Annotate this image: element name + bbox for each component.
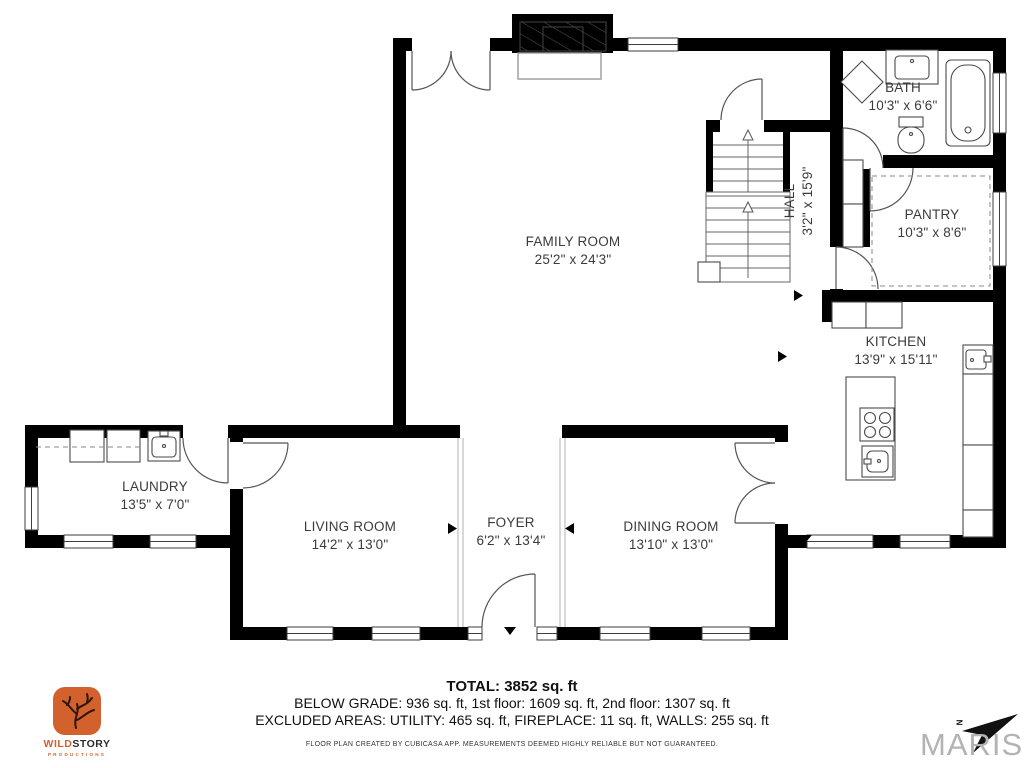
- door-stairs: [721, 79, 762, 120]
- kitchen-counter: [963, 374, 993, 445]
- room-dims: 6'2" x 13'4": [477, 532, 546, 550]
- door-living-room: [243, 443, 288, 488]
- door-closet: [870, 168, 913, 211]
- kitchen-counter: [963, 510, 993, 537]
- washer: [70, 430, 104, 462]
- room-name: PANTRY: [898, 206, 967, 224]
- kitchen-cabinet: [866, 302, 902, 328]
- stove: [860, 408, 894, 441]
- room-dims: 13'10" x 13'0": [623, 536, 718, 554]
- disclaimer: FLOOR PLAN CREATED BY CUBICASA APP. MEAS…: [0, 741, 1024, 748]
- floor-plan-page: FAMILY ROOM 25'2" x 24'3" BATH 10'3" x 6…: [0, 0, 1024, 768]
- laundry-sink: [148, 431, 180, 461]
- room-label-kitchen: KITCHEN 13'9" x 15'11": [854, 333, 937, 369]
- floor-plan-drawing: [0, 0, 1024, 768]
- wall-bath-left: [830, 38, 843, 168]
- wildstory-logo: WILDSTORY PRODUCTIONS: [27, 687, 127, 757]
- dryer: [107, 430, 140, 462]
- window: [628, 38, 678, 51]
- room-label-bath: BATH 10'3" x 6'6": [869, 79, 938, 115]
- room-name: LIVING ROOM: [304, 518, 396, 536]
- fireplace-hearth: [518, 53, 601, 79]
- window: [150, 535, 196, 548]
- window: [600, 627, 650, 640]
- room-label-hall: HALL 3'2" x 15'9": [781, 167, 817, 236]
- window: [702, 627, 750, 640]
- wildstory-name: WILDSTORY: [27, 738, 127, 750]
- wildstory-icon: [53, 687, 101, 735]
- wall-kitchen-top: [830, 290, 1006, 302]
- summary-block: TOTAL: 3852 sq. ft BELOW GRADE: 936 sq. …: [0, 678, 1024, 748]
- room-dims: 3'2" x 15'9": [799, 167, 817, 236]
- front-door: [482, 574, 535, 627]
- window: [25, 487, 38, 530]
- room-label-foyer: FOYER 6'2" x 13'4": [477, 514, 546, 550]
- room-dims: 13'5" x 7'0": [121, 496, 190, 514]
- room-name: FOYER: [477, 514, 546, 532]
- window: [993, 73, 1006, 133]
- total-area: TOTAL: 3852 sq. ft: [0, 678, 1024, 695]
- wildstory-subtitle: PRODUCTIONS: [27, 752, 127, 757]
- door-laundry: [183, 438, 228, 483]
- room-dims: 14'2" x 13'0": [304, 536, 396, 554]
- window: [993, 192, 1006, 266]
- room-dims: 10'3" x 6'6": [869, 97, 938, 115]
- room-name: LAUNDRY: [121, 478, 190, 496]
- toilet: [898, 117, 924, 153]
- room-label-pantry: PANTRY 10'3" x 8'6": [898, 206, 967, 242]
- wall-hall-top: [784, 120, 834, 132]
- stairs-up-arrow: [743, 202, 753, 212]
- room-label-dining-room: DINING ROOM 13'10" x 13'0": [623, 518, 718, 554]
- kitchen-cabinet: [832, 302, 866, 328]
- room-label-living-room: LIVING ROOM 14'2" x 13'0": [304, 518, 396, 554]
- room-label-laundry: LAUNDRY 13'5" x 7'0": [121, 478, 190, 514]
- floor-areas: BELOW GRADE: 936 sq. ft, 1st floor: 1609…: [0, 695, 1024, 712]
- window-sidelight: [537, 627, 557, 640]
- excluded-areas: EXCLUDED AREAS: UTILITY: 465 sq. ft, FIR…: [0, 712, 1024, 729]
- room-name: FAMILY ROOM: [526, 233, 621, 251]
- wall-stairs-left: [706, 120, 713, 192]
- window: [900, 535, 950, 548]
- room-dims: 10'3" x 8'6": [898, 224, 967, 242]
- window: [807, 535, 873, 548]
- room-name: DINING ROOM: [623, 518, 718, 536]
- room-dims: 13'9" x 15'11": [854, 351, 937, 369]
- wildstory-word2: STORY: [72, 738, 110, 750]
- kitchen-counter: [963, 445, 993, 510]
- french-doors-dining: [735, 443, 775, 523]
- window: [64, 535, 113, 548]
- window: [372, 627, 420, 640]
- room-name: HALL: [781, 167, 799, 236]
- island-sink: [862, 446, 893, 477]
- fireplace: [518, 22, 606, 79]
- window: [287, 627, 333, 640]
- hall-closets: [843, 160, 863, 247]
- wall-family-left: [393, 38, 406, 430]
- room-label-family-room: FAMILY ROOM 25'2" x 24'3": [526, 233, 621, 269]
- room-name: BATH: [869, 79, 938, 97]
- wall-closet-divider: [863, 160, 870, 247]
- double-door-family-room: [412, 51, 490, 90]
- stairs-landing: [698, 262, 720, 282]
- wildstory-word1: WILD: [44, 738, 73, 750]
- window-sidelight: [468, 627, 482, 640]
- room-dims: 25'2" x 24'3": [526, 251, 621, 269]
- bathtub: [946, 60, 990, 146]
- room-name: KITCHEN: [854, 333, 937, 351]
- maris-wordmark: MARIS: [920, 727, 1023, 763]
- maris-logo: N MARIS: [918, 694, 1024, 768]
